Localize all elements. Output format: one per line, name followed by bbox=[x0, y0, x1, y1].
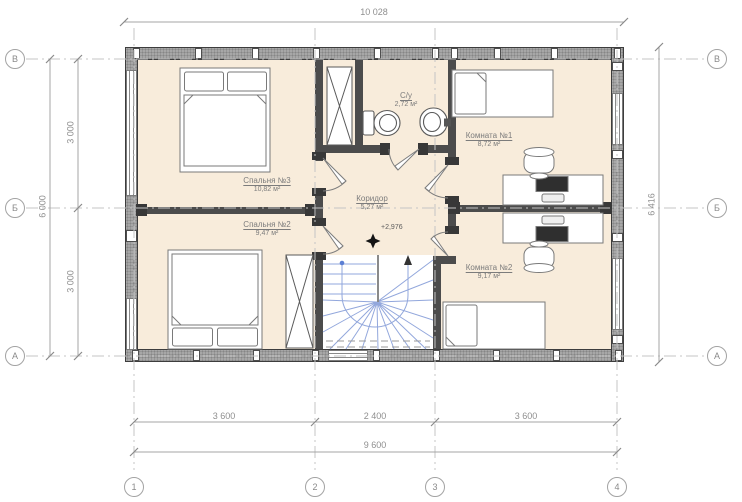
shaft-bedroom2 bbox=[286, 255, 313, 348]
dim-bottom-center: 2 400 bbox=[345, 411, 405, 422]
desk-room2 bbox=[503, 213, 603, 243]
room-name: Спальня №2 bbox=[217, 220, 317, 229]
room-label-room1: Комната №1 8,72 м² bbox=[439, 131, 539, 149]
dim-right-total: 6 416 bbox=[647, 175, 658, 235]
axis-col-3: 3 bbox=[425, 477, 445, 497]
bed-single-room2 bbox=[443, 302, 545, 349]
axis-row-b-right: Б bbox=[707, 198, 727, 218]
dim-bottom-total: 9 600 bbox=[345, 440, 405, 451]
shaft-bathroom bbox=[327, 67, 352, 145]
dim-top: 10 028 bbox=[344, 7, 404, 18]
door-bathroom bbox=[389, 149, 419, 170]
door-bedroom3 bbox=[323, 158, 346, 191]
elevation-mark-symbol bbox=[366, 234, 381, 249]
bed-double-bedroom2 bbox=[168, 250, 262, 349]
room-area: 10,82 м² bbox=[217, 186, 317, 194]
room-area: 8,72 м² bbox=[439, 141, 539, 149]
dim-bottom-left: 3 600 bbox=[194, 411, 254, 422]
axis-col-4: 4 bbox=[607, 477, 627, 497]
dim-left-upper: 3 000 bbox=[66, 103, 77, 163]
dim-left-total: 6 000 bbox=[38, 177, 49, 237]
floor-plan-drawing: Спальня №3 10,82 м² Спальня №2 9,47 м² С… bbox=[0, 0, 742, 502]
staircase bbox=[323, 255, 433, 349]
room-label-room2: Комната №2 9,17 м² bbox=[439, 263, 539, 281]
desk-room1 bbox=[503, 175, 603, 205]
room-label-bathroom: С/у 2,72 м² bbox=[381, 91, 431, 109]
axis-row-a-left: А bbox=[5, 346, 25, 366]
axis-row-a-right: А bbox=[707, 346, 727, 366]
axis-row-v-left: В bbox=[5, 49, 25, 69]
chair-room1 bbox=[524, 148, 554, 180]
drawing-overlay bbox=[0, 0, 742, 502]
room-label-bedroom2: Спальня №2 9,47 м² bbox=[217, 220, 317, 238]
room-label-bedroom3: Спальня №3 10,82 м² bbox=[217, 176, 317, 194]
room-name: Комната №2 bbox=[439, 263, 539, 272]
stair-start-dot bbox=[340, 261, 345, 266]
dim-bottom-right: 3 600 bbox=[496, 411, 556, 422]
room-name: Спальня №3 bbox=[217, 176, 317, 185]
room-area: 2,72 м² bbox=[381, 101, 431, 109]
axis-grid-lines bbox=[26, 28, 706, 470]
room-name: Комната №1 bbox=[439, 131, 539, 140]
axis-col-1: 1 bbox=[124, 477, 144, 497]
dim-left-lower: 3 000 bbox=[66, 252, 77, 312]
axis-row-v-right: В bbox=[707, 49, 727, 69]
room-name: С/у bbox=[381, 91, 431, 100]
room-label-corridor: Коридор 5,27 м² bbox=[337, 194, 407, 212]
room-area: 9,17 м² bbox=[439, 273, 539, 281]
room-area: 9,47 м² bbox=[217, 230, 317, 238]
toilet bbox=[363, 111, 400, 136]
door-room2 bbox=[431, 232, 448, 256]
axis-row-b-left: Б bbox=[5, 198, 25, 218]
bed-single-room1 bbox=[452, 70, 553, 117]
door-bedroom2 bbox=[323, 226, 343, 254]
axis-col-2: 2 bbox=[305, 477, 325, 497]
elevation-mark-value: +2,976 bbox=[381, 224, 425, 231]
door-room1 bbox=[425, 165, 448, 198]
stair-direction-arrow bbox=[404, 255, 412, 265]
bed-double-bedroom3 bbox=[180, 68, 270, 172]
room-area: 5,27 м² bbox=[337, 204, 407, 212]
room-name: Коридор bbox=[337, 194, 407, 203]
